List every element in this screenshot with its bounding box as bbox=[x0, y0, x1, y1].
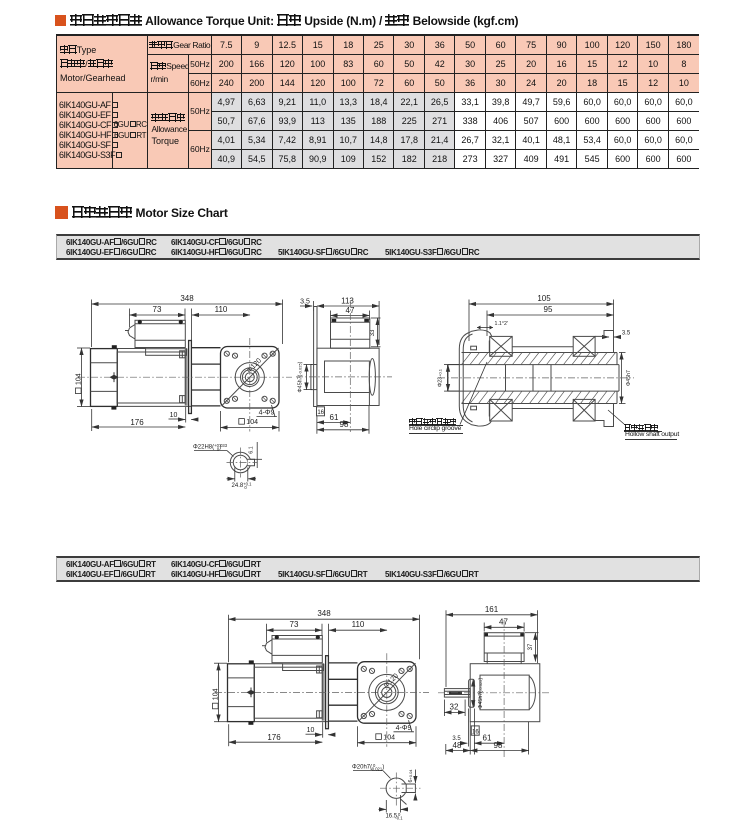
svg-text:48: 48 bbox=[453, 741, 462, 750]
svg-text:10: 10 bbox=[170, 412, 178, 419]
svg-text:176: 176 bbox=[130, 418, 144, 427]
svg-text:16.5 0-0.1: 16.5 0-0.1 bbox=[385, 812, 403, 820]
svg-text:98: 98 bbox=[340, 420, 349, 429]
svg-text:348: 348 bbox=[180, 294, 194, 303]
svg-text:3.5: 3.5 bbox=[622, 331, 631, 337]
svg-text:104: 104 bbox=[76, 373, 83, 385]
svg-text:98: 98 bbox=[494, 741, 503, 750]
svg-text:Φ22H8(+0.033 0): Φ22H8(+0.033 0) bbox=[193, 443, 228, 451]
svg-text:3.5: 3.5 bbox=[300, 299, 310, 306]
svg-text:Φ20h7( 0-0.021): Φ20h7( 0-0.021) bbox=[352, 763, 384, 771]
svg-text:Φ45h7(-0.025): Φ45h7(-0.025) bbox=[478, 678, 484, 709]
svg-text:73: 73 bbox=[153, 305, 162, 314]
svg-text:110: 110 bbox=[215, 305, 228, 314]
svg-text:61: 61 bbox=[483, 734, 492, 743]
svg-text:4-Φ9: 4-Φ9 bbox=[259, 410, 275, 417]
svg-text:6.1: 6.1 bbox=[249, 446, 255, 453]
svg-text:95: 95 bbox=[544, 305, 553, 314]
svg-text:24.8+0.1 0: 24.8+0.1 0 bbox=[232, 482, 253, 490]
svg-text:32: 32 bbox=[450, 703, 459, 712]
svg-text:104: 104 bbox=[246, 419, 258, 426]
svg-text:16: 16 bbox=[472, 729, 479, 735]
svg-text:16: 16 bbox=[317, 410, 324, 416]
svg-text:105: 105 bbox=[537, 294, 551, 303]
svg-text:61: 61 bbox=[330, 413, 339, 422]
svg-text:6+0.04: 6+0.04 bbox=[408, 769, 414, 783]
svg-text:113: 113 bbox=[341, 297, 354, 306]
svg-text:37: 37 bbox=[528, 643, 534, 650]
svg-text:1.1°2′: 1.1°2′ bbox=[495, 321, 508, 327]
svg-text:33: 33 bbox=[370, 329, 376, 336]
svg-text:161: 161 bbox=[485, 605, 499, 614]
